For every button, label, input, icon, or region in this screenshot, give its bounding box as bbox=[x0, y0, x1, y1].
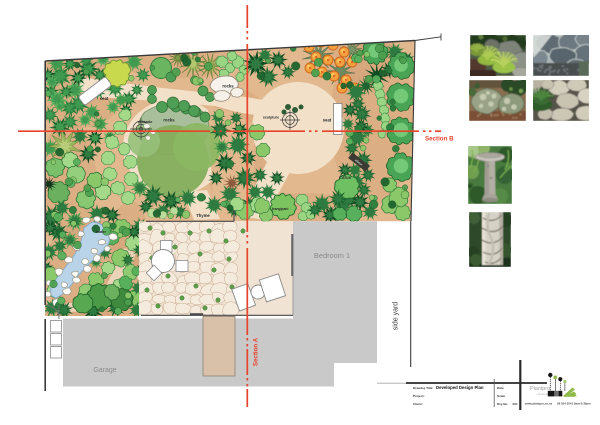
svg-text:side yard: side yard bbox=[393, 302, 400, 331]
svg-text:Section A: Section A bbox=[253, 337, 260, 366]
svg-text:09 524 3541 9am-5:30pm: 09 524 3541 9am-5:30pm bbox=[557, 402, 591, 406]
svg-text:Plantpro: Plantpro bbox=[530, 386, 550, 392]
svg-text:Section B: Section B bbox=[425, 136, 454, 143]
svg-text:Drg No.: Drg No. bbox=[497, 402, 508, 406]
svg-text:frangipani: frangipani bbox=[272, 207, 288, 211]
svg-text:Developed Design Plan: Developed Design Plan bbox=[436, 385, 484, 390]
svg-text:Client:: Client: bbox=[413, 402, 423, 406]
svg-text:Scale: Scale bbox=[497, 394, 505, 398]
svg-text:Date: Date bbox=[497, 386, 504, 390]
svg-text:Project:: Project: bbox=[413, 394, 425, 398]
svg-text:Citrus: Citrus bbox=[339, 175, 352, 180]
svg-text:seat: seat bbox=[323, 118, 332, 123]
svg-text:Thyme: Thyme bbox=[196, 213, 210, 218]
svg-text:Drawing Title:: Drawing Title: bbox=[413, 386, 433, 390]
svg-text:avocado: avocado bbox=[138, 120, 153, 124]
svg-text:www.plantpro.co.nz: www.plantpro.co.nz bbox=[524, 402, 553, 406]
svg-text:rocks: rocks bbox=[222, 84, 234, 89]
svg-text:Garage: Garage bbox=[93, 367, 116, 374]
svg-text:sculpture: sculpture bbox=[263, 116, 279, 120]
svg-text:001: 001 bbox=[513, 402, 518, 406]
svg-text:water: water bbox=[95, 230, 106, 234]
svg-text:rocks: rocks bbox=[163, 118, 175, 123]
svg-text:Bedroom 1: Bedroom 1 bbox=[314, 251, 350, 260]
svg-text:seat: seat bbox=[100, 96, 109, 101]
